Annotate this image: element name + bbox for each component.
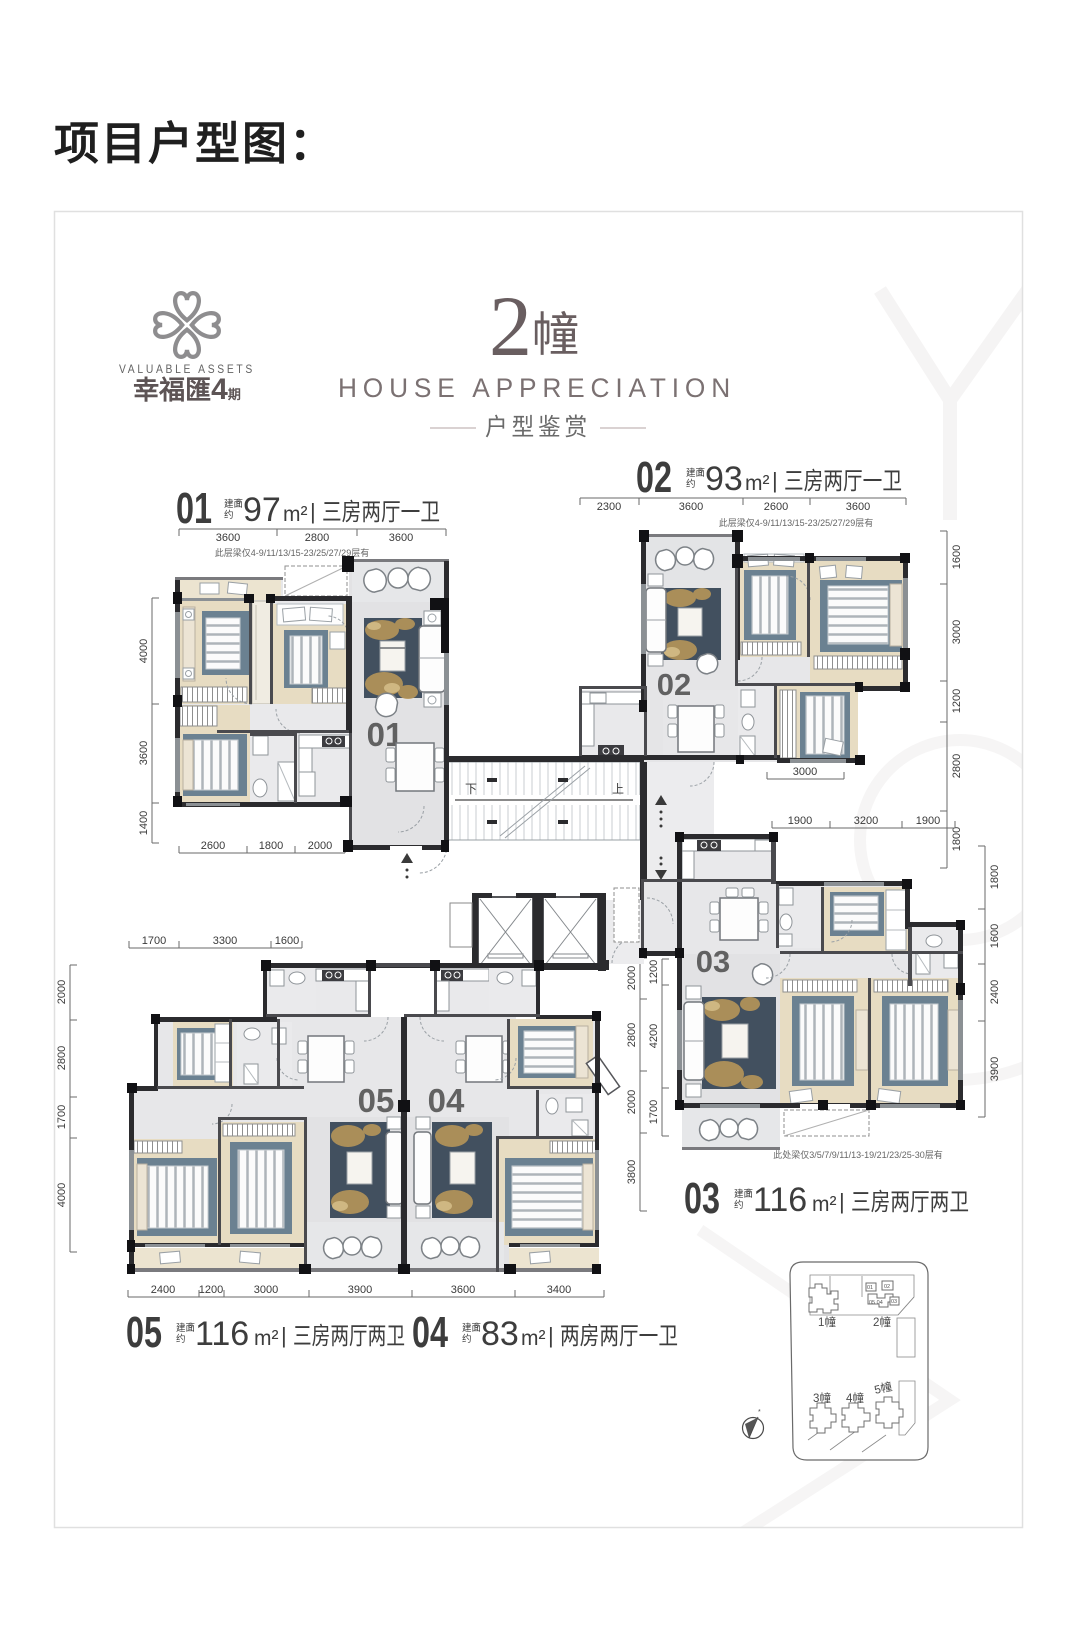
- svg-text:2800: 2800: [56, 1046, 68, 1070]
- svg-text:04: 04: [428, 1082, 465, 1119]
- svg-text:1600: 1600: [989, 924, 1001, 948]
- svg-text:3600: 3600: [389, 532, 413, 544]
- svg-text:4000: 4000: [56, 1183, 68, 1207]
- svg-text:®: ®: [474, 1322, 480, 1330]
- svg-text:m²: m²: [812, 1193, 837, 1216]
- svg-text:3000: 3000: [951, 620, 963, 644]
- svg-text:1200: 1200: [199, 1284, 223, 1296]
- svg-text:3200: 3200: [854, 815, 878, 827]
- svg-text:2800: 2800: [626, 1023, 638, 1047]
- svg-text:户型鉴赏: 户型鉴赏: [485, 414, 591, 441]
- svg-text:项目户型图：: 项目户型图：: [54, 118, 336, 169]
- svg-text:约: 约: [462, 1333, 472, 1345]
- svg-text:1400: 1400: [138, 811, 150, 835]
- svg-text:1900: 1900: [916, 815, 940, 827]
- svg-text:®: ®: [698, 467, 704, 475]
- svg-text:4000: 4000: [138, 639, 150, 663]
- svg-text:®: ®: [236, 498, 242, 506]
- svg-text:2000: 2000: [626, 1090, 638, 1114]
- svg-text:三房两厅一卫: 三房两厅一卫: [784, 468, 902, 495]
- svg-text:|: |: [310, 499, 316, 524]
- svg-text:2400: 2400: [151, 1284, 175, 1296]
- svg-text:1700: 1700: [56, 1105, 68, 1129]
- svg-text:03: 03: [684, 1174, 720, 1223]
- svg-text:3600: 3600: [451, 1284, 475, 1296]
- svg-text:m²: m²: [521, 1327, 546, 1350]
- svg-text:02: 02: [657, 667, 691, 702]
- svg-text:2600: 2600: [764, 501, 788, 513]
- svg-text:1幢: 1幢: [818, 1315, 836, 1329]
- svg-text:|: |: [839, 1189, 845, 1214]
- svg-text:1800: 1800: [989, 865, 1001, 889]
- svg-text:3600: 3600: [846, 501, 870, 513]
- svg-text:3400: 3400: [547, 1284, 571, 1296]
- svg-text:3600: 3600: [679, 501, 703, 513]
- svg-text:1200: 1200: [951, 689, 963, 713]
- svg-text:1800: 1800: [259, 840, 283, 852]
- svg-text:3300: 3300: [213, 935, 237, 947]
- svg-text:02: 02: [884, 1284, 890, 1290]
- svg-text:83: 83: [481, 1315, 519, 1353]
- svg-text:®: ®: [188, 1322, 194, 1330]
- svg-text:4幢: 4幢: [846, 1391, 864, 1405]
- svg-text:1700: 1700: [142, 935, 166, 947]
- svg-text:1600: 1600: [951, 545, 963, 569]
- svg-text:3900: 3900: [348, 1284, 372, 1296]
- svg-text:3900: 3900: [989, 1057, 1001, 1081]
- svg-text:1600: 1600: [275, 935, 299, 947]
- svg-text:m²: m²: [254, 1327, 279, 1350]
- svg-text:|: |: [281, 1323, 287, 1348]
- svg-text:|: |: [548, 1323, 554, 1348]
- svg-text:两房两厅一卫: 两房两厅一卫: [560, 1323, 678, 1350]
- svg-text:三房两厅两卫: 三房两厅两卫: [293, 1323, 405, 1350]
- svg-text:约: 约: [734, 1199, 744, 1211]
- svg-text:4200: 4200: [648, 1024, 660, 1048]
- svg-text:三房两厅一卫: 三房两厅一卫: [322, 499, 440, 526]
- svg-text:3800: 3800: [626, 1160, 638, 1184]
- svg-text:三房两厅两卫: 三房两厅两卫: [851, 1189, 969, 1216]
- svg-text:97: 97: [243, 491, 281, 529]
- svg-text:3000: 3000: [793, 766, 817, 778]
- svg-text:3幢: 3幢: [813, 1391, 831, 1405]
- svg-text:约: 约: [224, 509, 234, 521]
- svg-text:2000: 2000: [56, 980, 68, 1004]
- svg-text:3600: 3600: [138, 741, 150, 765]
- svg-text:93: 93: [705, 460, 743, 498]
- svg-text:2000: 2000: [308, 840, 332, 852]
- svg-text:01: 01: [176, 484, 212, 533]
- svg-text:HOUSE APPRECIATION: HOUSE APPRECIATION: [338, 373, 736, 403]
- svg-text:3000: 3000: [254, 1284, 278, 1296]
- svg-text:2000: 2000: [626, 966, 638, 990]
- svg-text:下: 下: [465, 782, 477, 796]
- svg-text:2幢: 2幢: [873, 1315, 891, 1329]
- svg-text:03: 03: [891, 1299, 897, 1305]
- svg-text:05: 05: [126, 1308, 162, 1357]
- svg-text:上: 上: [612, 782, 624, 796]
- svg-text:m²: m²: [745, 472, 770, 495]
- svg-text:03: 03: [696, 944, 730, 979]
- svg-text:2300: 2300: [597, 501, 621, 513]
- svg-text:1900: 1900: [788, 815, 812, 827]
- svg-text:|: |: [772, 468, 778, 493]
- svg-text:05: 05: [358, 1082, 395, 1119]
- svg-text:此处梁仅3/5/7/9/11/13-19/21/23/25-: 此处梁仅3/5/7/9/11/13-19/21/23/25-30层有: [773, 1149, 942, 1160]
- svg-text:3600: 3600: [216, 532, 240, 544]
- svg-text:2600: 2600: [201, 840, 225, 852]
- svg-text:1800: 1800: [951, 827, 963, 851]
- svg-text:116: 116: [195, 1315, 249, 1353]
- svg-text:116: 116: [753, 1181, 807, 1219]
- svg-text:2800: 2800: [951, 754, 963, 778]
- svg-text:05 04: 05 04: [869, 1300, 883, 1306]
- svg-text:04: 04: [412, 1308, 448, 1357]
- svg-text:1200: 1200: [648, 960, 660, 984]
- svg-text:此层梁仅4-9/11/13/15-23/25/27/29层有: 此层梁仅4-9/11/13/15-23/25/27/29层有: [719, 517, 873, 528]
- svg-text:m²: m²: [283, 503, 308, 526]
- svg-text:1700: 1700: [648, 1100, 660, 1124]
- svg-text:2400: 2400: [989, 980, 1001, 1004]
- svg-text:2800: 2800: [305, 532, 329, 544]
- svg-text:*: *: [758, 1409, 761, 1416]
- svg-text:01: 01: [867, 1285, 873, 1291]
- svg-text:约: 约: [176, 1333, 186, 1345]
- svg-text:约: 约: [686, 478, 696, 490]
- svg-text:®: ®: [746, 1188, 752, 1196]
- svg-text:幸福匯4期: 幸福匯4期: [133, 373, 241, 406]
- svg-text:02: 02: [636, 453, 672, 502]
